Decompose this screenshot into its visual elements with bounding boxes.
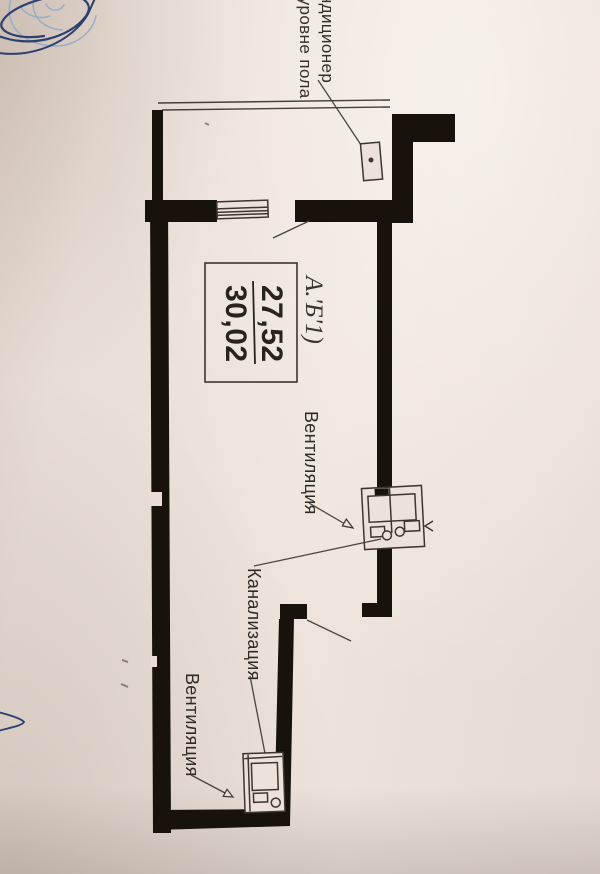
ventilation-mid-arrowhead <box>342 519 353 528</box>
wall-interior-bottom-bar <box>280 604 307 619</box>
paper-smudge <box>121 684 128 687</box>
grille-symbol <box>217 200 269 219</box>
wall-interior-top-right <box>295 200 413 222</box>
vent-right-arrowhead <box>425 521 433 531</box>
ventilation-bottom-arrowhead <box>223 789 233 797</box>
sewer-label: Канализация <box>244 568 264 681</box>
photographed-paper: кондиционер на уровне пола 27,52 30,02 А… <box>0 0 600 874</box>
wall-interior-top-left <box>145 200 217 222</box>
window-wall-line-inner <box>162 107 390 110</box>
ac-label-line1: кондиционер <box>318 0 337 83</box>
vent-duct-opening <box>368 494 416 522</box>
wall-left-notch <box>149 492 162 506</box>
paper-smudge <box>122 660 128 662</box>
vent-shaft-symbol-2 <box>243 752 285 812</box>
floor-plan-drawing: кондиционер на уровне пола 27,52 30,02 А… <box>0 0 600 874</box>
pen-signature-loop <box>0 0 89 41</box>
vent-shaft-symbol-1 <box>361 485 424 549</box>
wall-left-upper <box>152 110 163 202</box>
sewer-riser-circle-2 <box>271 798 280 807</box>
opening-pointer-line-bottom <box>307 620 351 641</box>
room-designation: А.'Б'1) <box>300 274 327 344</box>
sewer-leader-up <box>254 539 381 566</box>
opening-pointer-line-top <box>273 221 309 238</box>
area-lower-value: 30,02 <box>219 285 252 363</box>
wall-right-mid <box>362 222 392 617</box>
ventilation-bottom-arrow-line <box>191 775 227 794</box>
wall-left-notch-small <box>151 656 157 667</box>
ac-leader-dot <box>369 158 374 163</box>
ventilation-bottom-label: Вентиляция <box>182 673 202 777</box>
area-upper-value: 27,52 <box>255 285 288 363</box>
area-fraction-line <box>253 281 255 364</box>
paper-speck <box>205 123 209 125</box>
wall-top-right-bar <box>392 114 455 142</box>
vent-duct-opening <box>251 763 278 791</box>
ventilation-mid-label: Вентиляция <box>301 411 321 515</box>
pen-mark-bottom-left <box>0 712 24 731</box>
ac-label-line2: на уровне пола <box>296 0 315 99</box>
pen-stamp-arc <box>33 0 62 30</box>
sewer-riser-circle-1 <box>382 531 391 540</box>
pen-scribble-top-left <box>0 0 96 54</box>
window-wall-line-outer <box>158 100 390 103</box>
wall-left <box>150 200 171 833</box>
pen-stamp-squiggle <box>46 4 64 10</box>
